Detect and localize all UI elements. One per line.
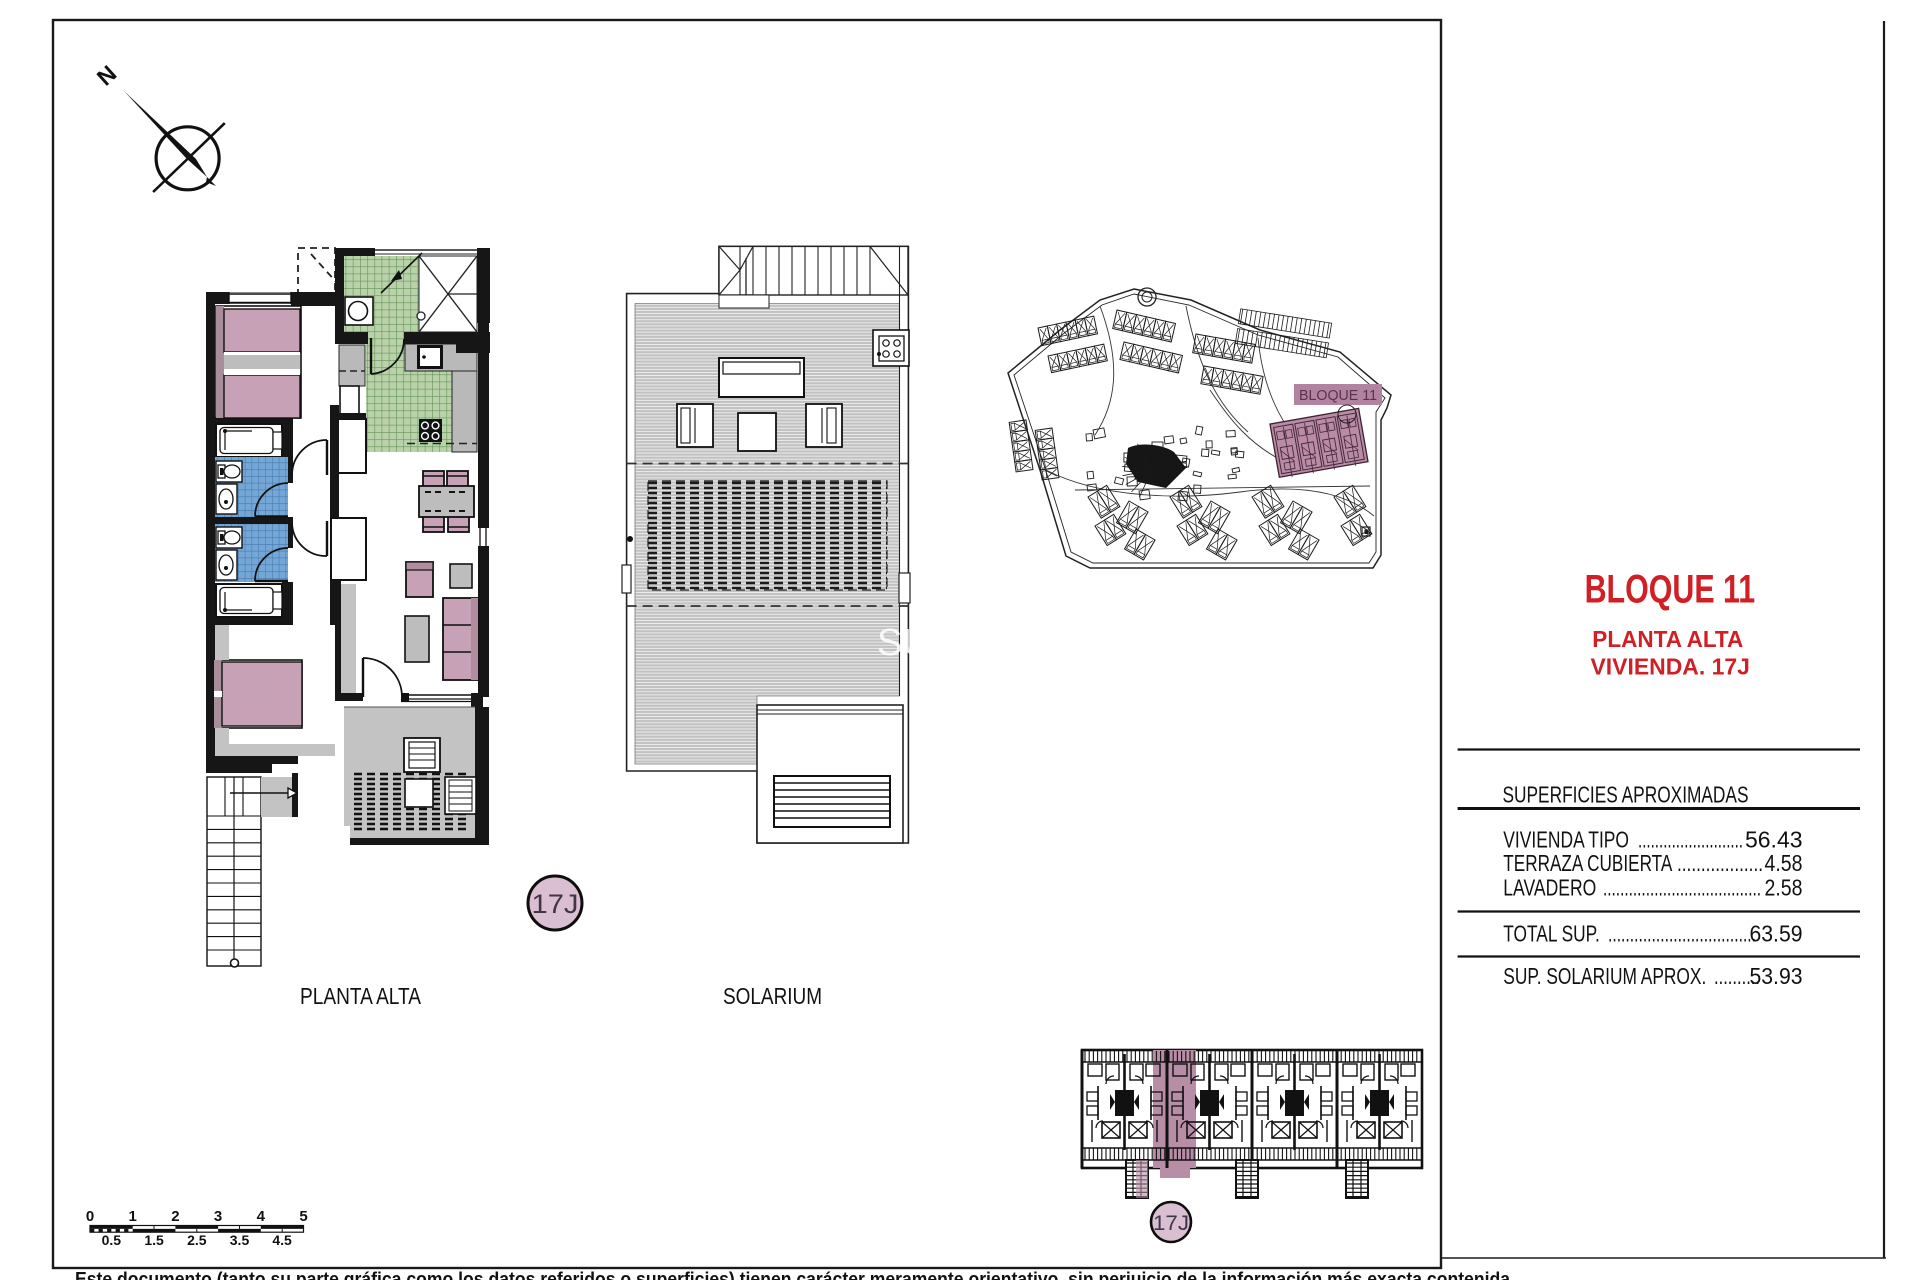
svg-text:BLOQUE 11: BLOQUE 11 — [1585, 568, 1756, 612]
svg-text:TOTAL SUP.: TOTAL SUP. — [1503, 921, 1600, 947]
svg-text:4.5: 4.5 — [272, 1232, 292, 1248]
svg-text:4: 4 — [257, 1208, 266, 1225]
svg-text:0.5: 0.5 — [102, 1232, 122, 1248]
svg-text:.........................: ......................... — [1638, 827, 1743, 853]
svg-text:N: N — [92, 60, 122, 90]
svg-text:53.93: 53.93 — [1750, 963, 1803, 989]
svg-text:3: 3 — [214, 1208, 222, 1225]
svg-text:SU: SU — [877, 622, 930, 664]
svg-text:SUP. SOLARIUM APROX.: SUP. SOLARIUM APROX. — [1503, 963, 1706, 989]
svg-text:2: 2 — [171, 1208, 179, 1225]
svg-text:1.5: 1.5 — [144, 1232, 164, 1248]
svg-text:VIVIENDA TIPO: VIVIENDA TIPO — [1503, 827, 1629, 853]
svg-text:VIVIENDA. 17J: VIVIENDA. 17J — [1591, 654, 1750, 680]
svg-text:..............................: ..................................... — [1603, 875, 1761, 901]
svg-text:..............................: .................................. — [1608, 921, 1756, 947]
svg-text:17J: 17J — [532, 889, 579, 919]
svg-text:SUPERFICIES APROXIMADAS: SUPERFICIES APROXIMADAS — [1503, 782, 1749, 808]
svg-text:1: 1 — [129, 1208, 137, 1225]
svg-text:5: 5 — [299, 1208, 307, 1225]
svg-text:4.58: 4.58 — [1765, 850, 1803, 876]
svg-text:2.58: 2.58 — [1765, 875, 1803, 901]
svg-text:TERRAZA CUBIERTA: TERRAZA CUBIERTA — [1503, 850, 1672, 876]
svg-text:63.59: 63.59 — [1750, 921, 1803, 947]
svg-text:PLANTA ALTA: PLANTA ALTA — [300, 983, 422, 1009]
svg-text:17J: 17J — [1153, 1212, 1189, 1235]
svg-text:2.5: 2.5 — [187, 1232, 207, 1248]
svg-text:SOLARIUM: SOLARIUM — [723, 983, 822, 1009]
svg-text:0: 0 — [86, 1208, 94, 1225]
svg-text:56.43: 56.43 — [1745, 827, 1803, 853]
svg-text:BLOQUE 11: BLOQUE 11 — [1299, 387, 1377, 404]
svg-text:3.5: 3.5 — [230, 1232, 250, 1248]
svg-text:LAVADERO: LAVADERO — [1503, 875, 1596, 901]
svg-text:..................: .................. — [1677, 850, 1763, 876]
svg-text:Este documento (tanto su parte: Este documento (tanto su parte gráfica c… — [75, 1270, 1510, 1280]
svg-text:PLANTA ALTA: PLANTA ALTA — [1592, 626, 1743, 652]
